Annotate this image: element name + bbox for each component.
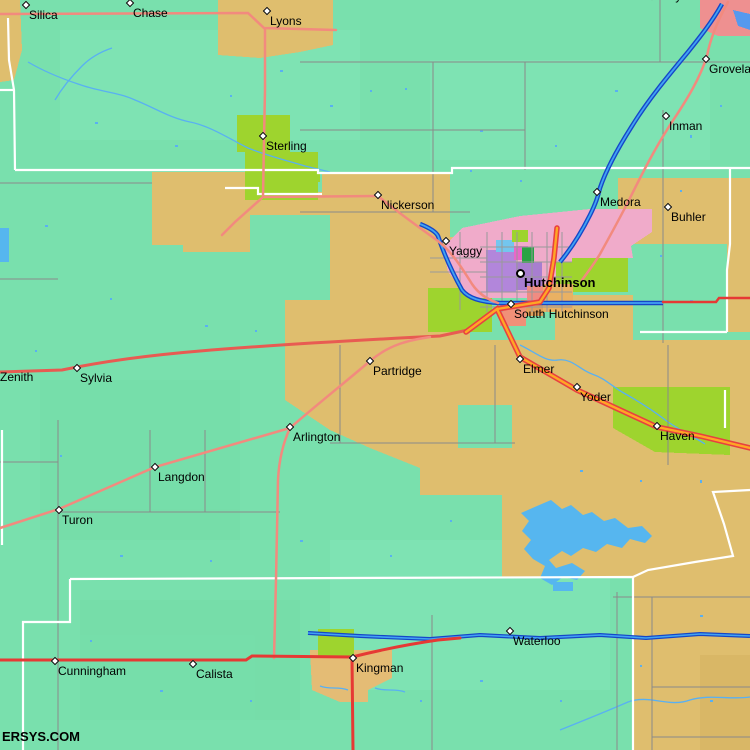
place-label-arlington: Arlington [293, 431, 340, 443]
place-label-haven: Haven [660, 430, 695, 442]
place-label-cunningham: Cunningham [58, 665, 126, 677]
place-label-buhler: Buhler [671, 211, 706, 223]
place-label-sterling: Sterling [266, 140, 307, 152]
place-label-langdon: Langdon [158, 471, 205, 483]
place-label-partridge: Partridge [373, 365, 422, 377]
place-label-yaggy: Yaggy [449, 245, 482, 257]
place-label-lyons: Lyons [270, 15, 302, 27]
place-label-calista: Calista [196, 668, 233, 680]
ersys-watermark: ERSYS.COM [2, 729, 80, 744]
place-labels-layer: SilicaChaseLyonsConwayGrovelandInmanSter… [0, 0, 750, 750]
place-label-waterloo: Waterloo [513, 635, 561, 647]
place-label-medora: Medora [600, 196, 641, 208]
place-label-elmer: Elmer [523, 363, 554, 375]
place-label-zenith: Zenith [0, 371, 33, 383]
place-label-groveland: Groveland [709, 63, 750, 75]
place-label-south-hutchinson: South Hutchinson [514, 308, 609, 320]
map-viewport[interactable]: SilicaChaseLyonsConwayGrovelandInmanSter… [0, 0, 750, 750]
place-label-hutchinson: Hutchinson [524, 277, 596, 289]
place-label-sylvia: Sylvia [80, 372, 112, 384]
place-label-chase: Chase [133, 7, 168, 19]
place-label-conway: Conway [638, 0, 681, 2]
place-label-silica: Silica [29, 9, 58, 21]
place-label-inman: Inman [669, 120, 702, 132]
place-label-kingman: Kingman [356, 662, 403, 674]
place-label-yoder: Yoder [580, 391, 611, 403]
place-label-turon: Turon [62, 514, 93, 526]
place-label-nickerson: Nickerson [381, 199, 434, 211]
